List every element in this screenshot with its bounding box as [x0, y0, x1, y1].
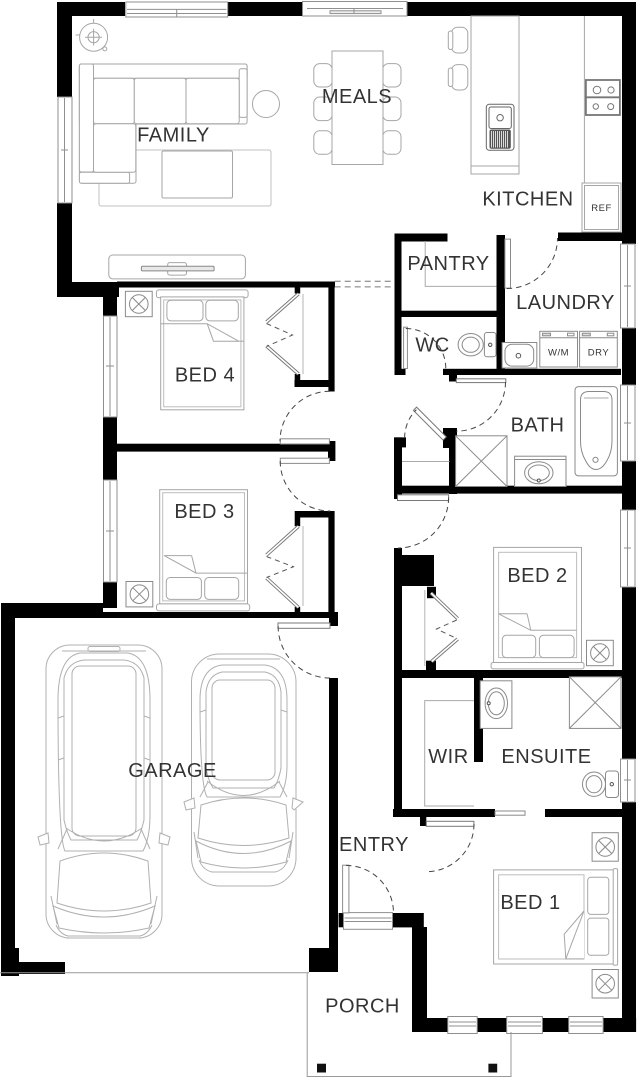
- svg-text:BATH: BATH: [511, 415, 565, 437]
- svg-text:BED 2: BED 2: [507, 565, 567, 587]
- svg-text:KITCHEN: KITCHEN: [482, 189, 573, 211]
- svg-text:DRY: DRY: [588, 348, 610, 359]
- svg-text:BED 4: BED 4: [175, 365, 235, 387]
- svg-text:W/M: W/M: [548, 348, 569, 359]
- svg-text:WC: WC: [415, 335, 449, 357]
- svg-text:MEALS: MEALS: [322, 86, 392, 108]
- svg-text:ENTRY: ENTRY: [339, 834, 409, 856]
- svg-text:PORCH: PORCH: [325, 996, 400, 1018]
- svg-text:BED 1: BED 1: [500, 892, 560, 914]
- svg-text:PANTRY: PANTRY: [407, 253, 489, 275]
- svg-text:FAMILY: FAMILY: [137, 125, 210, 147]
- svg-text:REF: REF: [591, 203, 612, 214]
- svg-text:BED 3: BED 3: [174, 501, 234, 523]
- svg-text:WIR: WIR: [428, 746, 468, 768]
- svg-text:LAUNDRY: LAUNDRY: [516, 292, 615, 314]
- svg-text:ENSUITE: ENSUITE: [501, 746, 591, 768]
- svg-text:GARAGE: GARAGE: [128, 760, 217, 782]
